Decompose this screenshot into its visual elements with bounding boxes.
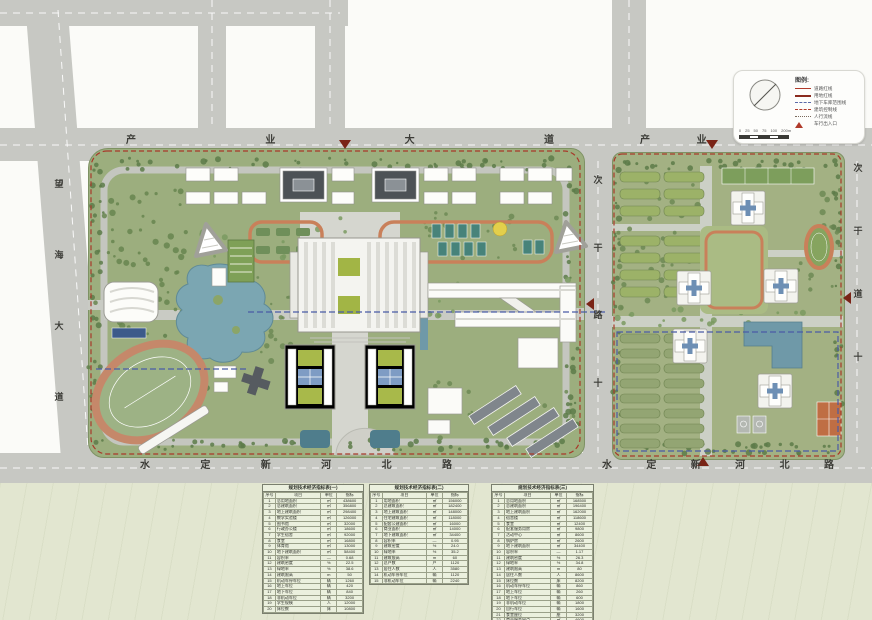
tower: [764, 269, 798, 303]
scale-tick-label: 200m: [781, 128, 791, 133]
tree: [746, 449, 752, 455]
legend-items: 道路红线用地红线地下车库范围线建筑控制线人行流线车行出入口: [795, 85, 859, 127]
tree: [268, 358, 274, 364]
tree: [484, 159, 488, 163]
tree: [338, 216, 342, 220]
tree: [159, 278, 163, 282]
tree: [128, 157, 131, 160]
indicator-table-3: 规划技术经济指标表(三)序号项目单位指标1总用地面积㎡1685002总建筑面积㎡…: [491, 484, 594, 620]
road-label-middle-secondary: 次干路十: [592, 176, 604, 388]
road-label-char: 干: [593, 244, 602, 253]
table-title: 规划技术经济指标表(二): [370, 485, 468, 492]
tree: [328, 157, 331, 160]
tree: [215, 156, 221, 162]
tree: [168, 233, 174, 239]
tree: [765, 442, 770, 447]
tree: [827, 451, 830, 454]
table-cell: 辆: [427, 578, 443, 584]
tree: [181, 248, 187, 254]
yellow-feature: [493, 222, 507, 236]
tree: [93, 381, 97, 385]
library-courtyard-north: [338, 258, 360, 276]
tree: [834, 259, 837, 262]
tree: [834, 390, 840, 396]
tree: [629, 314, 632, 317]
tree: [116, 202, 119, 205]
tree: [487, 230, 490, 233]
tree: [565, 364, 569, 368]
tree: [414, 439, 419, 444]
tree: [281, 316, 284, 319]
tree: [176, 270, 180, 274]
tree: [111, 228, 114, 231]
library-main-building: [290, 238, 428, 342]
tree: [139, 228, 142, 231]
tree: [264, 343, 269, 348]
tree: [113, 255, 116, 258]
tree: [255, 157, 259, 161]
legend-label: 人行流线: [814, 114, 832, 120]
tree: [647, 216, 652, 221]
tree: [495, 440, 498, 443]
road-label-char: 大: [405, 136, 415, 146]
road-label-char: 水: [140, 461, 150, 471]
tree: [834, 163, 838, 167]
road-label-char: 十: [853, 353, 862, 362]
table-title: 规划技术经济指标表(一): [263, 485, 363, 492]
tree: [554, 216, 559, 221]
tree: [492, 164, 496, 168]
tree: [733, 161, 739, 167]
tree: [836, 174, 841, 179]
tree: [449, 445, 453, 449]
tree: [97, 169, 103, 175]
tree: [96, 322, 102, 328]
tree: [645, 166, 649, 170]
tree: [571, 369, 577, 375]
tree: [97, 230, 102, 235]
tree: [97, 250, 100, 253]
tree: [820, 209, 826, 215]
tree: [681, 317, 686, 322]
table-cell: 10800: [337, 607, 363, 613]
road-label-shuiding-right: 水定新河北路: [602, 461, 834, 471]
tree: [667, 167, 670, 170]
tree: [658, 324, 662, 328]
tree: [436, 380, 440, 384]
tree: [213, 255, 216, 258]
tree: [164, 267, 169, 272]
tree: [434, 217, 437, 220]
legend-sample-dash-red: [795, 109, 811, 110]
tree: [567, 260, 571, 264]
tree: [425, 226, 428, 229]
tree: [251, 163, 255, 167]
tree: [568, 394, 574, 400]
tree: [348, 441, 352, 445]
tree: [835, 230, 839, 234]
tree: [611, 280, 615, 284]
tree: [399, 448, 402, 451]
tree: [542, 163, 547, 168]
tree: [167, 291, 170, 294]
road-label-char: 道: [544, 136, 554, 146]
tree: [831, 285, 834, 288]
indicator-table-1: 规划技术经济指标表(一)序号项目单位指标1总用地面积㎡4386002总建筑面积㎡…: [262, 484, 364, 614]
tree: [834, 347, 839, 352]
road-label-char: 次: [593, 176, 602, 185]
scale-tick-label: 25: [745, 128, 749, 133]
tree: [615, 359, 621, 365]
scale-segment: [749, 135, 759, 140]
tree: [164, 242, 170, 248]
tree: [274, 338, 278, 342]
tree: [173, 189, 176, 192]
teaching-cluster-west: [285, 345, 335, 409]
tree: [462, 159, 466, 163]
tree: [136, 160, 139, 163]
table-row: 15非机动车位辆2240: [371, 578, 468, 584]
tree: [572, 414, 576, 418]
entrance-triangle-icon: [795, 122, 803, 128]
tree: [372, 161, 378, 167]
tree: [408, 441, 414, 447]
tree: [621, 282, 626, 287]
road-label-char: 路: [824, 461, 834, 471]
tree: [344, 159, 347, 162]
tree: [94, 317, 98, 321]
tower: [758, 374, 792, 408]
tree: [222, 234, 228, 240]
road-label-char: 定: [646, 461, 656, 471]
tree: [377, 448, 380, 451]
tree: [566, 255, 569, 258]
road-label-shuiding-left: 水定新河北路: [140, 461, 452, 471]
tree: [617, 231, 621, 235]
tree: [671, 161, 675, 165]
road-label-char: 产: [126, 136, 136, 146]
tree: [615, 202, 617, 204]
tree: [752, 443, 758, 449]
tree: [823, 445, 826, 448]
tree: [572, 189, 576, 193]
master-plan-canvas: 产业大道 产业大道 水定新河北路 水定新河北路 望海大道 次干路十 次干道十 0…: [0, 0, 872, 620]
scale-segment: [779, 135, 789, 140]
tree: [745, 446, 748, 449]
tree: [543, 159, 547, 163]
road-label-char: 水: [602, 461, 612, 471]
tree: [428, 234, 431, 237]
tree: [832, 158, 837, 163]
tree: [396, 162, 398, 164]
legend-item: 地下车库范围线: [795, 99, 859, 106]
tree: [829, 225, 832, 228]
tree: [297, 161, 301, 165]
legend-label: 地下车库范围线: [814, 100, 846, 106]
tree: [563, 211, 569, 217]
road-label-char: 河: [321, 461, 331, 471]
tree: [779, 443, 782, 446]
legend-label: 道路红线: [814, 86, 832, 92]
tree: [460, 256, 465, 261]
tree: [467, 390, 471, 394]
tree: [761, 160, 764, 163]
scale-segment: [769, 135, 779, 140]
tree: [834, 196, 838, 200]
tree: [148, 160, 153, 165]
road-label-industry-avenue: 产业大道: [126, 136, 554, 146]
tree: [190, 445, 193, 448]
courtyard-dorm-west: [280, 168, 327, 202]
road-label-char: 十: [593, 379, 602, 388]
legend-sample-solid-thick: [795, 95, 811, 97]
tree: [285, 441, 288, 444]
tree: [178, 254, 184, 260]
legend-sample-dash-blue: [795, 102, 811, 103]
tree: [101, 439, 104, 442]
tree: [438, 300, 441, 303]
tree: [618, 305, 624, 311]
tree: [221, 444, 225, 448]
road-label-char: 道: [853, 290, 862, 299]
table-cell: 20: [264, 607, 276, 613]
scale-bar: [739, 135, 791, 140]
tree: [458, 447, 461, 450]
road-label-char: 业: [697, 136, 707, 146]
tree: [280, 255, 286, 261]
tree: [833, 340, 837, 344]
tree: [795, 445, 799, 449]
tree: [797, 160, 801, 164]
tree: [109, 210, 115, 216]
road-label-char: 路: [593, 311, 602, 320]
tree: [145, 191, 149, 195]
legend-header: 图例:: [795, 75, 859, 84]
tree: [178, 188, 184, 194]
tree: [500, 160, 502, 162]
tree: [759, 445, 762, 448]
tree: [564, 390, 568, 394]
tree: [617, 264, 623, 270]
tree: [670, 263, 673, 266]
tree: [833, 191, 838, 196]
scale-segment: [739, 135, 749, 140]
tree: [808, 273, 814, 279]
tree: [107, 251, 110, 254]
tree: [840, 256, 843, 259]
tree: [179, 203, 182, 206]
road-label-char: 望: [54, 180, 63, 189]
tree: [99, 185, 102, 188]
tree: [616, 216, 622, 222]
table-cell: 床: [321, 607, 337, 613]
table-row: 20床位数床10800: [264, 607, 363, 613]
road-label-char: 大: [54, 322, 63, 331]
tree: [270, 303, 272, 305]
road-label-char: 河: [735, 461, 745, 471]
tree: [86, 365, 90, 369]
tree: [655, 164, 658, 167]
tree: [163, 334, 167, 338]
tree: [434, 163, 437, 166]
tree: [718, 159, 723, 164]
legend-item: 道路红线: [795, 85, 859, 92]
road-label-char: 定: [200, 461, 210, 471]
tree: [576, 347, 580, 351]
legend-label: 建筑控制线: [814, 107, 837, 113]
tree: [151, 220, 155, 224]
tree: [343, 230, 347, 234]
tree: [175, 164, 180, 169]
tree: [574, 402, 576, 404]
entrance-marker-icon: [843, 292, 851, 304]
tree: [672, 307, 677, 312]
tree: [379, 158, 382, 161]
tree: [93, 360, 97, 364]
table-title: 规划技术经济指标表(三): [492, 485, 593, 492]
scale-segment: [759, 135, 769, 140]
tree: [627, 227, 632, 232]
tower: [673, 329, 707, 363]
tree: [687, 165, 693, 171]
tree: [691, 183, 695, 187]
tree: [155, 192, 158, 195]
tree: [143, 257, 148, 262]
canteen-triangle-west: [196, 224, 226, 256]
tree: [265, 444, 268, 447]
tree: [94, 440, 99, 445]
tree: [483, 438, 489, 444]
tree: [434, 211, 437, 214]
tree: [800, 310, 806, 316]
tree: [98, 269, 103, 274]
tree: [282, 240, 285, 243]
tree: [174, 308, 178, 312]
tree: [157, 446, 160, 449]
tree: [164, 299, 170, 305]
tree: [93, 300, 98, 305]
road-label-char: 业: [265, 136, 275, 146]
tree: [93, 213, 97, 217]
tree: [92, 169, 95, 172]
tree: [200, 440, 204, 444]
tree: [172, 439, 175, 442]
gymnasium: [104, 282, 158, 338]
residential-sports-field: [722, 168, 814, 184]
road-label-char: 路: [442, 461, 452, 471]
indicator-table-2: 规划技术经济指标表(二)序号项目单位指标1用地面积㎡1560002总建筑面积㎡1…: [369, 484, 469, 585]
tree: [116, 259, 122, 265]
tree: [137, 162, 141, 166]
tree: [497, 256, 500, 259]
tree: [509, 214, 515, 220]
tree: [673, 231, 677, 235]
tree: [700, 318, 704, 322]
tree: [783, 162, 787, 166]
tree: [824, 197, 830, 203]
tree: [610, 389, 615, 394]
tree: [94, 163, 99, 168]
tree: [706, 158, 711, 163]
tree: [451, 309, 455, 313]
tree: [111, 240, 115, 244]
tree: [615, 315, 621, 321]
tree: [130, 194, 136, 200]
tree: [565, 277, 571, 283]
road-label-char: 北: [780, 461, 790, 471]
legend-sample-triangle: [795, 115, 811, 133]
tree: [548, 155, 554, 161]
tree: [776, 311, 779, 314]
tree: [289, 440, 294, 445]
tree: [444, 212, 448, 216]
tree: [662, 319, 665, 322]
road-label-char: 产: [640, 136, 650, 146]
tree: [269, 329, 274, 334]
tree: [99, 200, 102, 203]
tree: [838, 244, 841, 247]
tree: [542, 403, 547, 408]
tree: [344, 161, 348, 165]
tree: [159, 282, 164, 287]
tree: [790, 442, 794, 446]
tree: [621, 321, 625, 325]
tree: [205, 159, 208, 162]
courtyard-dorm-east: [372, 168, 419, 202]
scale-tick-label: 50: [754, 128, 758, 133]
tree: [650, 164, 655, 169]
tower: [731, 191, 765, 225]
tower: [677, 271, 711, 305]
tree: [140, 167, 145, 172]
tree: [735, 441, 741, 447]
tree: [99, 261, 103, 265]
tree: [137, 200, 141, 204]
tree: [153, 239, 159, 245]
tree: [173, 247, 179, 253]
tree: [823, 164, 827, 168]
tree: [616, 167, 622, 173]
tree: [808, 287, 812, 291]
tree: [126, 167, 130, 171]
tree: [294, 160, 296, 162]
tree: [89, 203, 95, 209]
scale-tick-label: 100: [770, 128, 777, 133]
teaching-cluster-east: [365, 345, 415, 409]
legend-sample-solid-thin: [795, 88, 811, 89]
tree: [678, 306, 684, 312]
scale-tick-label: 0: [739, 128, 741, 133]
tree: [471, 411, 474, 414]
tree: [131, 262, 136, 267]
tree: [263, 161, 269, 167]
sports-courts: [432, 222, 544, 256]
tree: [123, 260, 129, 266]
tree: [260, 351, 263, 354]
se-dorm-slabs: [469, 386, 578, 458]
tree: [437, 313, 441, 317]
tree: [617, 238, 620, 241]
mini-running-track: [806, 226, 832, 268]
road-label-char: 次: [853, 164, 862, 173]
tree: [348, 444, 353, 449]
tree: [184, 230, 188, 234]
tree: [645, 298, 651, 304]
tree: [192, 439, 197, 444]
tree: [620, 246, 626, 252]
tree: [835, 240, 840, 245]
north-compass-icon: [745, 75, 785, 115]
